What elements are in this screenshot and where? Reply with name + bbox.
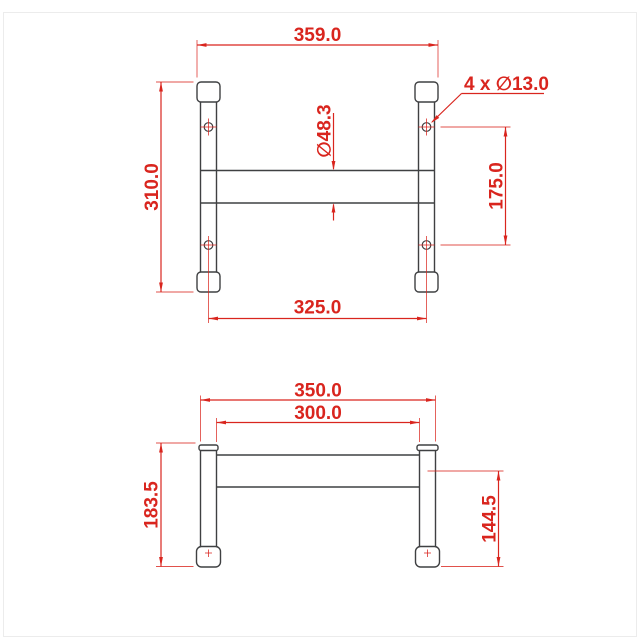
front-right-post [416, 445, 440, 567]
dim-label-350: 350.0 [294, 381, 342, 402]
dimension-hole-callout: 4 x ∅13.0 [430, 74, 549, 124]
dimension-hole-spacing-325: 325.0 [209, 236, 427, 323]
front-view-geometry [197, 445, 440, 567]
dimension-height-183: 183.5 [142, 443, 196, 567]
dim-label-183: 183.5 [142, 481, 163, 529]
dim-label-310: 310.0 [142, 163, 163, 211]
drawing-page: 359.0 310.0 ∅48.3 4 x ∅13.0 175.0 3 [0, 0, 640, 640]
dim-label-tube-diameter: ∅48.3 [315, 104, 336, 157]
dim-label-hole-callout: 4 x ∅13.0 [464, 74, 549, 95]
dimension-height-310: 310.0 [142, 82, 194, 292]
foot-center-marks [205, 550, 431, 558]
dim-label-175: 175.0 [487, 162, 508, 210]
front-left-post-cap [199, 445, 218, 451]
dim-label-325: 325.0 [294, 298, 342, 319]
dim-label-300: 300.0 [294, 403, 342, 424]
dim-label-359: 359.0 [294, 25, 342, 46]
right-post-top-cap [415, 82, 438, 102]
dimension-hole-spacing-175: 175.0 [441, 127, 511, 245]
dim-label-144: 144.5 [480, 495, 501, 543]
front-right-post-cap [417, 445, 438, 451]
drawing-canvas: 359.0 310.0 ∅48.3 4 x ∅13.0 175.0 3 [0, 0, 640, 640]
cross-tube [201, 171, 435, 204]
left-post-top-cap [197, 82, 220, 102]
front-cross-tube [217, 455, 420, 487]
front-left-post [197, 445, 221, 567]
dimension-width-359: 359.0 [197, 25, 438, 78]
dimension-span-300: 300.0 [217, 403, 420, 442]
